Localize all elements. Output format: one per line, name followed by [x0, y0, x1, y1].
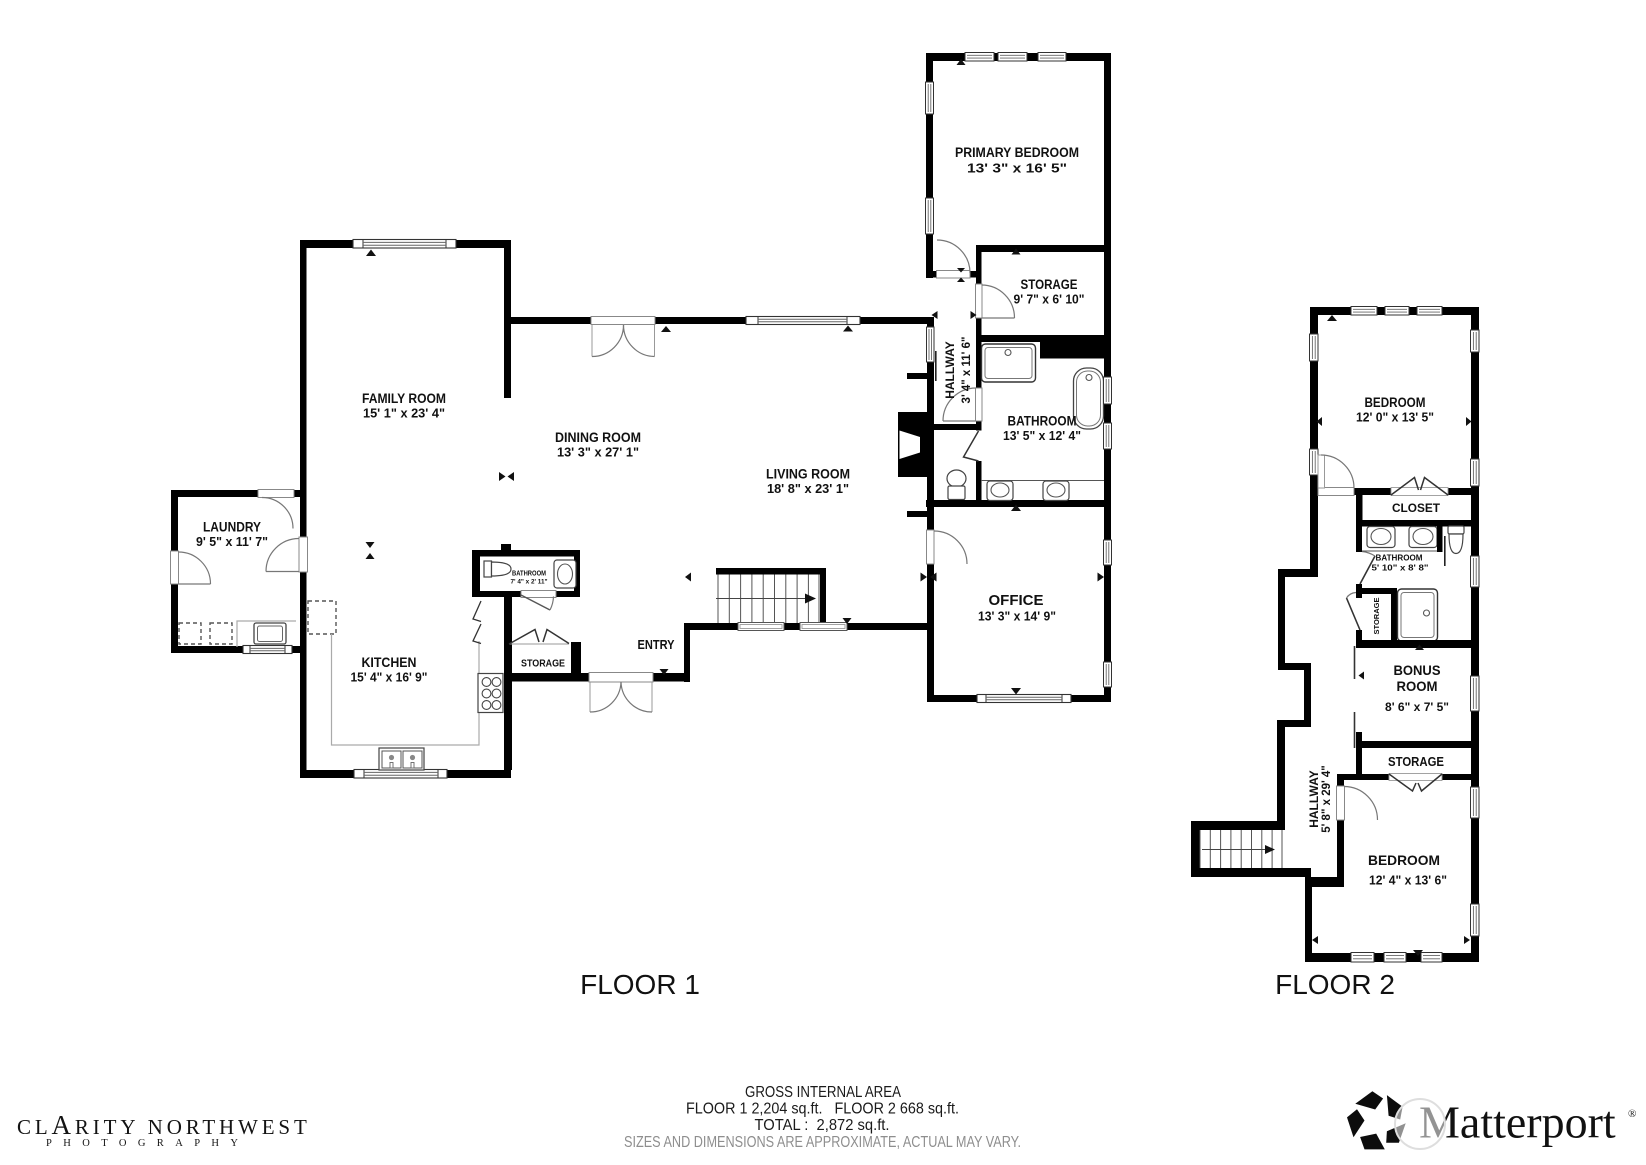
- svg-text:DINING ROOM: DINING ROOM: [555, 430, 641, 445]
- svg-text:BEDROOM: BEDROOM: [1368, 852, 1440, 868]
- svg-text:SIZES AND DIMENSIONS ARE APPRO: SIZES AND DIMENSIONS ARE APPROXIMATE, AC…: [624, 1134, 1021, 1151]
- svg-text:KITCHEN: KITCHEN: [362, 655, 417, 670]
- svg-text:LAUNDRY: LAUNDRY: [203, 520, 261, 535]
- svg-text:13' 3" x 27' 1": 13' 3" x 27' 1": [557, 445, 639, 460]
- svg-text:®: ®: [1628, 1108, 1636, 1120]
- svg-text:5' 10" x 8' 8": 5' 10" x 8' 8": [1372, 563, 1429, 573]
- svg-text:HALLWAY: HALLWAY: [1307, 770, 1321, 828]
- svg-text:18' 8" x 23' 1": 18' 8" x 23' 1": [767, 481, 849, 496]
- svg-text:ENTRY: ENTRY: [638, 637, 675, 652]
- svg-text:13' 3" x 14' 9": 13' 3" x 14' 9": [978, 609, 1056, 624]
- svg-text:FLOOR 1: FLOOR 1: [580, 969, 700, 1000]
- svg-text:3' 4" x 11' 6": 3' 4" x 11' 6": [961, 337, 973, 404]
- svg-text:STORAGE: STORAGE: [521, 658, 565, 670]
- svg-text:FLOOR 2: FLOOR 2: [1275, 969, 1395, 1000]
- svg-text:BEDROOM: BEDROOM: [1365, 395, 1426, 410]
- svg-text:STORAGE: STORAGE: [1021, 277, 1078, 292]
- svg-text:TOTAL : 2,872 sq.ft.: TOTAL : 2,872 sq.ft.: [755, 1117, 890, 1134]
- svg-text:15' 1" x 23' 4": 15' 1" x 23' 4": [363, 406, 445, 421]
- svg-text:OFFICE: OFFICE: [989, 592, 1044, 609]
- svg-text:BATHROOM: BATHROOM: [1008, 414, 1077, 429]
- svg-text:BATHROOM: BATHROOM: [512, 571, 546, 578]
- svg-text:8' 6" x 7' 5": 8' 6" x 7' 5": [1385, 700, 1449, 714]
- svg-text:ROOM: ROOM: [1397, 678, 1438, 694]
- svg-text:15' 4" x 16' 9": 15' 4" x 16' 9": [351, 670, 428, 685]
- svg-text:12' 4" x 13' 6": 12' 4" x 13' 6": [1369, 873, 1447, 888]
- svg-text:13' 3" x 16' 5": 13' 3" x 16' 5": [967, 161, 1067, 176]
- svg-text:PRIMARY BEDROOM: PRIMARY BEDROOM: [955, 145, 1079, 160]
- svg-text:CLARITY NORTHWEST: CLARITY NORTHWEST: [17, 1110, 310, 1140]
- svg-text:CLOSET: CLOSET: [1392, 503, 1440, 515]
- svg-text:STORAGE: STORAGE: [1372, 598, 1381, 635]
- svg-text:9' 7" x 6' 10": 9' 7" x 6' 10": [1014, 292, 1085, 307]
- svg-text:Matterport: Matterport: [1419, 1097, 1616, 1148]
- svg-text:13' 5" x 12' 4": 13' 5" x 12' 4": [1003, 428, 1081, 443]
- svg-text:FLOOR 1 2,204 sq.ft. FLOOR 2: FLOOR 1 2,204 sq.ft. FLOOR 2 668 sq.ft.: [686, 1101, 959, 1118]
- svg-text:LIVING ROOM: LIVING ROOM: [766, 467, 850, 482]
- svg-text:STORAGE: STORAGE: [1388, 755, 1444, 769]
- svg-text:HALLWAY: HALLWAY: [943, 341, 957, 399]
- svg-text:12' 0" x 13' 5": 12' 0" x 13' 5": [1356, 410, 1434, 425]
- svg-text:PHOTOGRAPHY: PHOTOGRAPHY: [46, 1138, 249, 1149]
- svg-text:9' 5" x 11' 7": 9' 5" x 11' 7": [196, 534, 268, 549]
- svg-text:5' 8" x 29' 4": 5' 8" x 29' 4": [1321, 765, 1333, 833]
- svg-text:7' 4" x 2' 11": 7' 4" x 2' 11": [511, 579, 548, 586]
- svg-text:FAMILY ROOM: FAMILY ROOM: [362, 391, 446, 406]
- svg-text:BONUS: BONUS: [1394, 662, 1441, 678]
- svg-text:BATHROOM: BATHROOM: [1376, 553, 1423, 563]
- svg-text:GROSS INTERNAL AREA: GROSS INTERNAL AREA: [745, 1084, 902, 1101]
